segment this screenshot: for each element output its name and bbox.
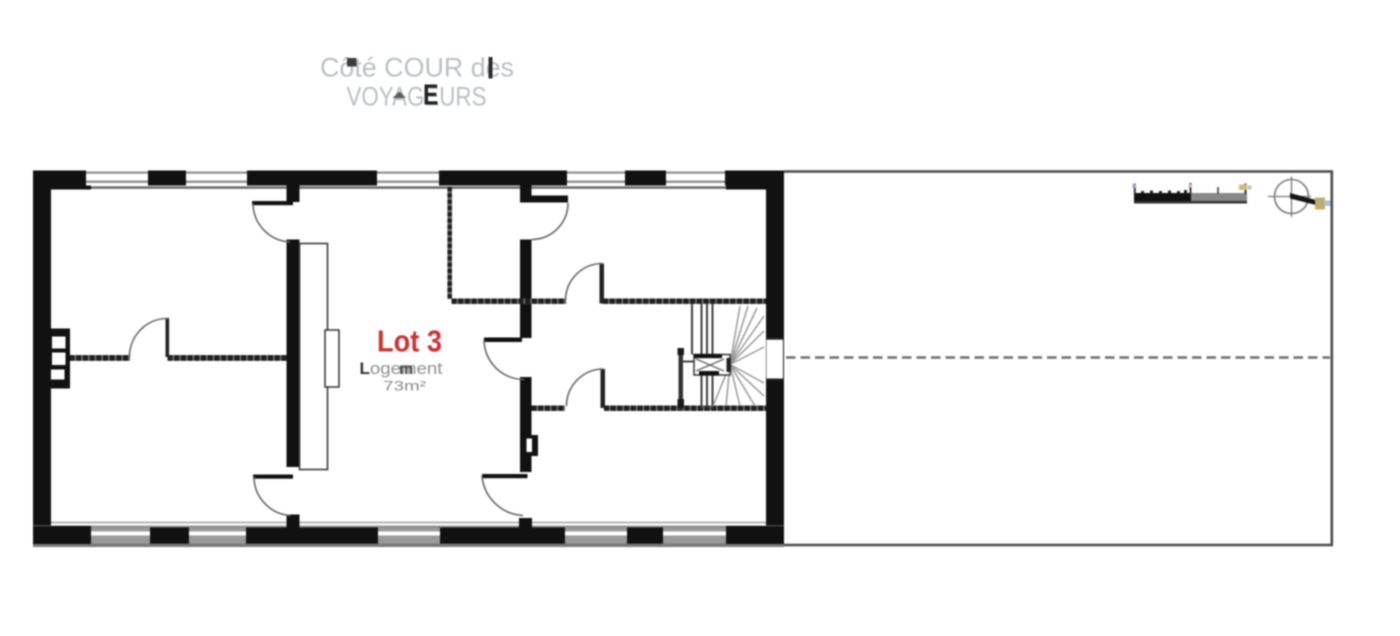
svg-text:VOYAGEURS: VOYAGEURS (347, 82, 487, 112)
svg-text:Côté COUR des: Côté COUR des (320, 53, 514, 83)
svg-text:Lot 3: Lot 3 (377, 324, 442, 359)
svg-text:E: E (423, 80, 439, 112)
svg-text:73m²: 73m² (383, 378, 426, 394)
svg-text:L: L (360, 359, 370, 378)
svg-text:m: m (399, 361, 413, 378)
